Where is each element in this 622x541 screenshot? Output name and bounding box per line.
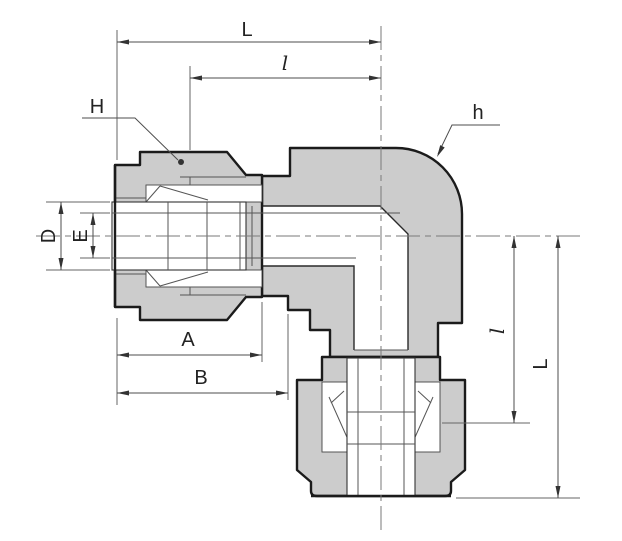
leader-h: h [435,102,500,158]
arrowhead [276,391,288,396]
left-nut-ferrule-window-top [146,185,262,202]
label-D: D [38,229,60,243]
arrowhead [556,486,561,498]
arrowhead [556,236,561,248]
left-nut-ferrule-window-bottom [146,270,262,287]
leader-line-h [438,125,500,154]
arrowhead [59,258,64,270]
arrowhead [117,40,129,45]
arrowhead [117,353,129,358]
label-h: h [472,102,483,124]
leader-arrowhead-h [435,145,445,158]
arrowhead [190,76,202,81]
arrowhead [512,236,517,248]
arrowhead [512,411,517,423]
dimension-L-right: L [456,236,580,498]
label-B: B [194,367,207,389]
label-l-right: l [485,328,509,334]
dimension-l-top: l [190,51,381,150]
arrowhead [369,40,381,45]
arrowhead [117,391,129,396]
label-E: E [70,229,92,242]
label-L-right: L [530,358,552,369]
technical-drawing-page: L l D E A B l [0,0,622,541]
leader-dot-H [178,159,184,165]
arrowhead [91,213,96,225]
arrowhead [59,202,64,214]
dimension-E: E [70,213,110,258]
arrowhead [369,76,381,81]
label-L-top: L [241,19,252,41]
bottom-nut-ferrule-window-right [415,382,440,452]
arrowhead [91,246,96,258]
label-A: A [181,329,195,351]
elbow-body [246,148,462,382]
arrowhead [250,353,262,358]
label-l-top: l [282,51,288,75]
bottom-nut-ferrule-window-left [322,382,347,452]
elbow-fitting-drawing: L l D E A B l [0,0,622,541]
label-H: H [90,96,104,118]
